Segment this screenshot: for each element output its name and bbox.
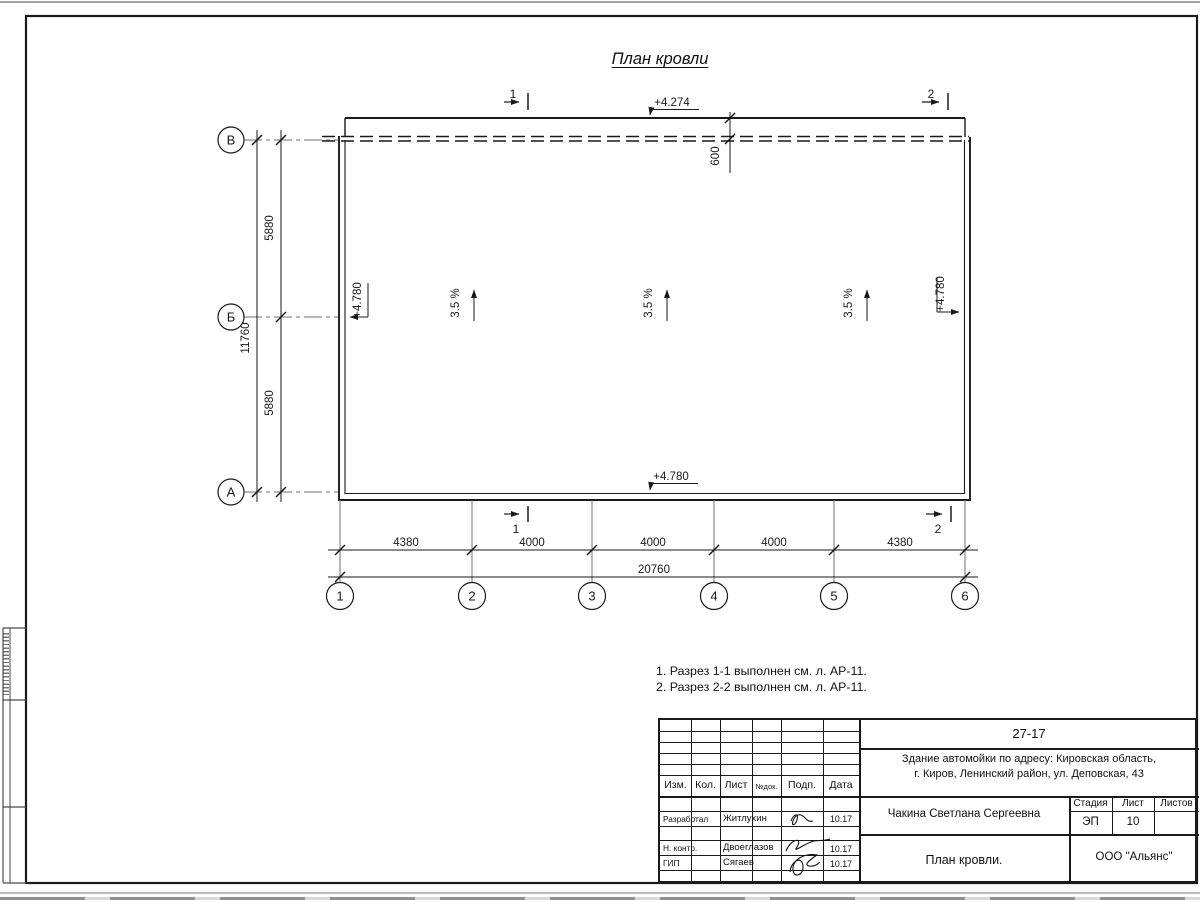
axis-col-6: 6 bbox=[961, 589, 968, 604]
grid-bubbles: В Б А 1 2 3 4 5 6 bbox=[218, 127, 979, 610]
section-2-bottom-label: 2 bbox=[935, 522, 942, 536]
title-block: Изм. Кол. Лист №док. Подп. Дата Разработ… bbox=[658, 718, 1197, 883]
note-line-2: 2. Разрез 2-2 выполнен см. л. АР-11. bbox=[656, 680, 867, 696]
dim-4000-1: 4000 bbox=[519, 537, 545, 549]
axis-col-4: 4 bbox=[710, 589, 717, 604]
dim-4380-left: 4380 bbox=[393, 537, 419, 549]
section-1-top-label: 1 bbox=[510, 87, 517, 101]
section-2-top-label: 2 bbox=[928, 87, 935, 101]
dim-5880-bottom: 5880 bbox=[264, 390, 276, 416]
drawing-sheet: 4380 4000 4000 4000 4380 20760 5880 5880… bbox=[0, 0, 1200, 900]
signature-zhitlukhin bbox=[791, 815, 813, 825]
axis-lines bbox=[244, 140, 965, 582]
dim-total-left: 11760 bbox=[240, 322, 252, 353]
notes-block: 1. Разрез 1-1 выполнен см. л. АР-11. 2. … bbox=[656, 664, 867, 695]
slope-label-3: 3.5 % bbox=[843, 288, 855, 317]
dim-4380-right: 4380 bbox=[887, 537, 913, 549]
axis-row-a: А bbox=[227, 485, 236, 500]
slope-label-1: 3.5 % bbox=[450, 288, 462, 317]
note-line-1: 1. Разрез 1-1 выполнен см. л. АР-11. bbox=[656, 664, 867, 680]
dim-overhang-600: 600 bbox=[710, 146, 722, 165]
axis-col-2: 2 bbox=[468, 589, 475, 604]
dim-4000-3: 4000 bbox=[761, 537, 787, 549]
axis-col-5: 5 bbox=[830, 589, 837, 604]
signature-syagaev bbox=[790, 855, 820, 876]
slope-label-2: 3.5 % bbox=[643, 288, 655, 317]
axis-row-b: Б bbox=[227, 310, 236, 325]
dimension-texts: 4380 4000 4000 4000 4380 20760 5880 5880… bbox=[240, 146, 913, 576]
elevation-left-label: +4.780 bbox=[352, 282, 364, 318]
section-1-bottom-label: 1 bbox=[513, 522, 520, 536]
axis-col-3: 3 bbox=[588, 589, 595, 604]
section-marks: 1 2 1 2 bbox=[504, 87, 951, 536]
elevation-bottom-label: +4.780 bbox=[653, 471, 689, 483]
dim-total-bottom: 20760 bbox=[638, 564, 670, 576]
slope-marks: 3.5 % 3.5 % 3.5 % bbox=[450, 288, 867, 321]
axis-row-v: В bbox=[227, 133, 236, 148]
elevation-top-label: +4.274 bbox=[654, 97, 690, 109]
dim-5880-top: 5880 bbox=[264, 215, 276, 241]
signature-dvoeglazov bbox=[786, 839, 830, 851]
dim-4000-2: 4000 bbox=[640, 537, 666, 549]
page-title: План кровли bbox=[560, 50, 760, 69]
axis-col-1: 1 bbox=[336, 589, 343, 604]
dimension-lines bbox=[252, 112, 978, 582]
signatures bbox=[660, 720, 1199, 885]
